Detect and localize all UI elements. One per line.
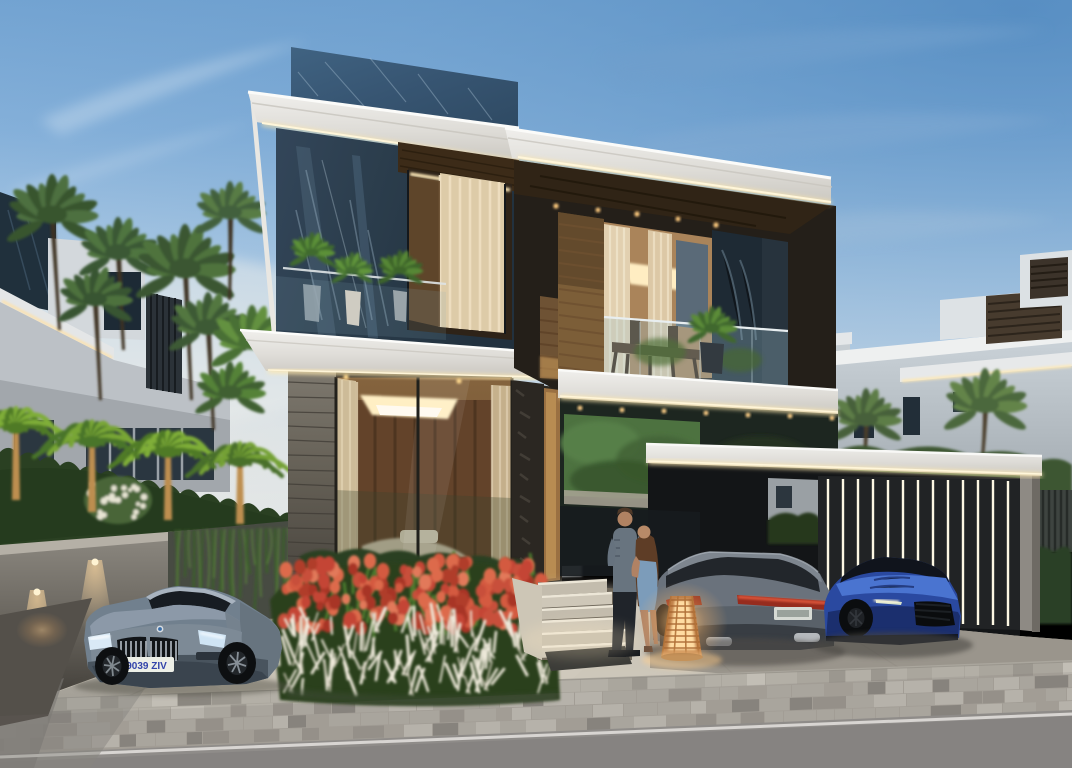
svg-text:9039 ZIV: 9039 ZIV xyxy=(126,661,167,672)
